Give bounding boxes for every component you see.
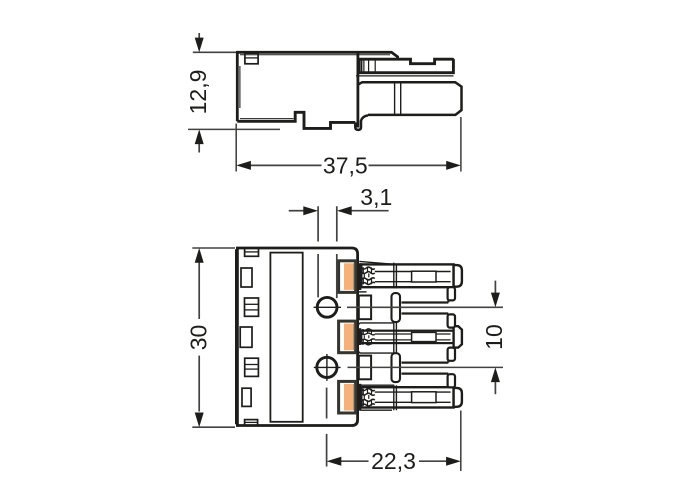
svg-text:22,3: 22,3: [371, 448, 416, 474]
svg-text:12,9: 12,9: [185, 70, 211, 115]
svg-text:10: 10: [481, 324, 507, 350]
svg-text:37,5: 37,5: [323, 153, 368, 179]
svg-text:3,1: 3,1: [360, 184, 392, 210]
svg-text:30: 30: [185, 325, 211, 351]
